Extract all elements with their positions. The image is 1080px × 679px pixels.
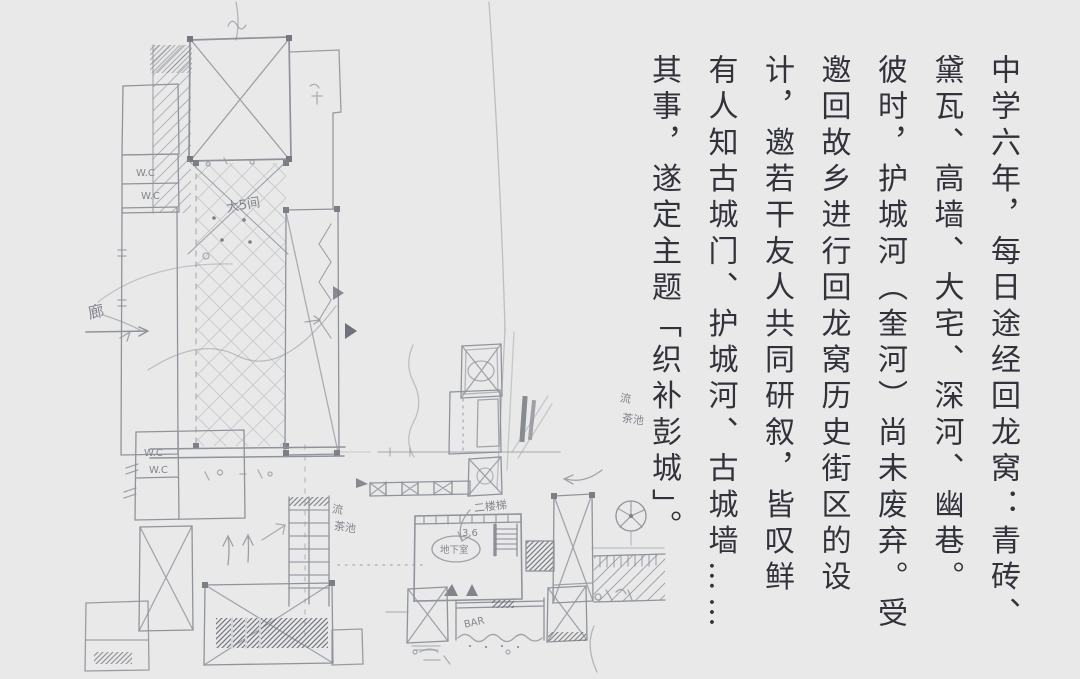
plan-secondary [378, 448, 665, 603]
label-corridor: 廊 [86, 301, 106, 323]
essay-column-2: 黛瓦、高墙、大宅、深河、幽巷。 [917, 54, 974, 662]
label-wc-b: W.C [141, 191, 160, 202]
plan-left-room [86, 207, 178, 455]
label-tea-a: 茶池 [333, 520, 357, 536]
label-wc-d: W.C [149, 465, 168, 476]
plan-courtyard [98, 158, 336, 449]
page: { "canvas": { "background": "#e9e9e9", "… [0, 0, 1080, 675]
label-flow-a: 流 [331, 502, 344, 517]
essay: 中学六年，每日途经回龙窝：青砖、 黛瓦、高墙、大宅、深河、幽巷。 彼时，护城河（… [635, 54, 1031, 662]
label-depth: 3.6 [462, 528, 478, 539]
sketch-labels: 廊 大5间 W.C W.C W.C W.C 流 茶池 流 茶池 二楼梯 3.6 … [86, 168, 645, 631]
plan-fence [356, 478, 470, 496]
label-bar: BAR [463, 616, 486, 631]
sketch-drawing: 廊 大5间 W.C W.C W.C W.C 流 茶池 流 茶池 二楼梯 3.6 … [0, 0, 680, 675]
plan-bottom-room [85, 580, 363, 671]
essay-column-6: 有人知古城门、护城河、古城墙…… [691, 54, 748, 662]
label-basement: 地下室 [440, 544, 469, 556]
plan-mid-wall [150, 447, 370, 480]
essay-column-4: 邀回故乡进行回龙窝历史街区的设 [804, 54, 861, 662]
essay-column-5: 计，邀若干友人共同研叙，皆叹鲜 [748, 54, 805, 662]
essay-column-1: 中学六年，每日途经回龙窝：青砖、 [974, 54, 1031, 662]
pavilions [449, 344, 552, 496]
plan-lower-left-room [139, 445, 428, 640]
essay-column-7: 其事，遂定主题「织补彭城」。 [635, 54, 692, 662]
plan-right-room [283, 206, 357, 456]
label-wc-c: W.C [144, 448, 163, 459]
label-upstairs: 二楼梯 [473, 497, 507, 514]
sketch-area: 廊 大5间 W.C W.C W.C W.C 流 茶池 流 茶池 二楼梯 3.6 … [0, 0, 680, 675]
label-wc-a: W.C [136, 168, 155, 179]
label-flow-b: 流 [619, 391, 632, 406]
essay-column-3: 彼时，护城河（奎河）尚未废弃。受 [861, 54, 918, 662]
